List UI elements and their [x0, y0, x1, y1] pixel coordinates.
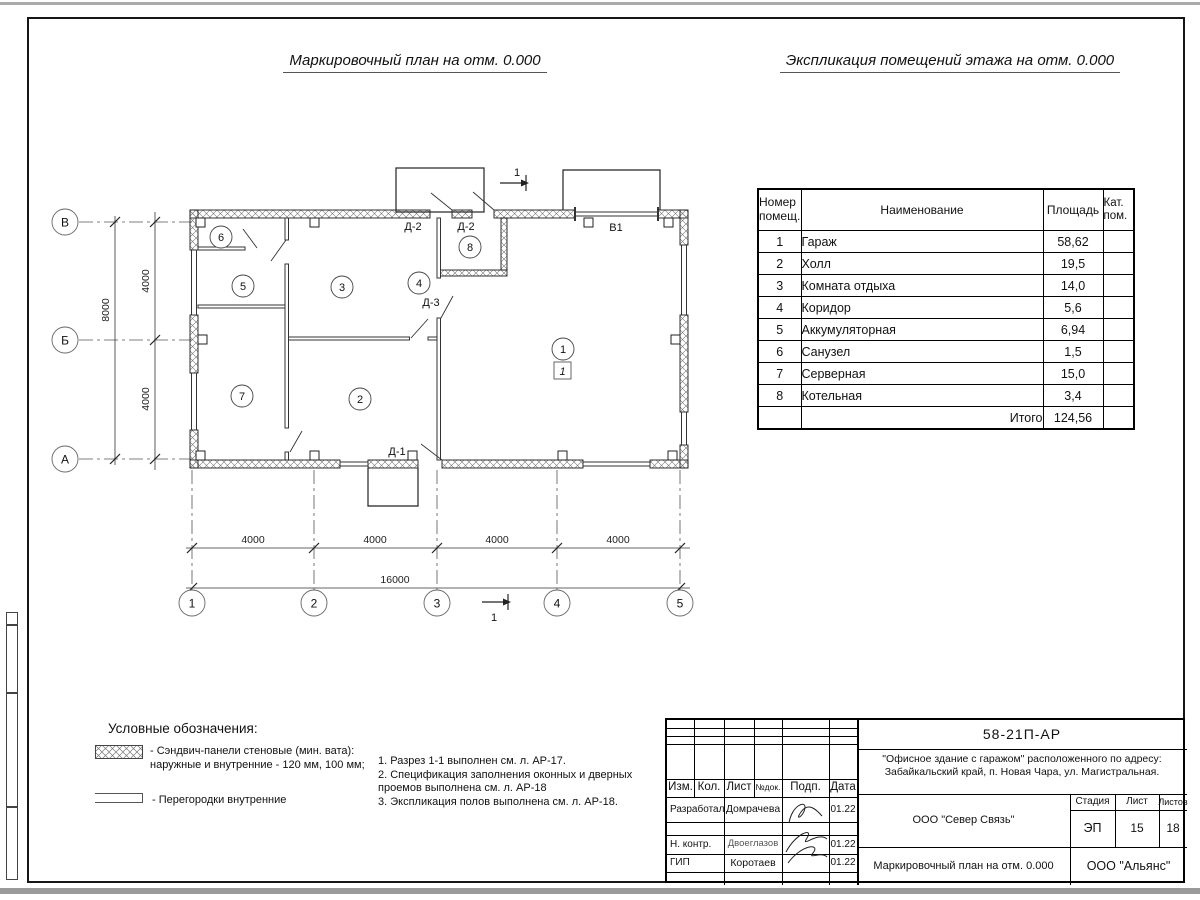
room-cat — [1103, 319, 1134, 341]
svg-text:Д-3: Д-3 — [422, 297, 439, 309]
legend-partition-swatch — [95, 793, 143, 803]
room-cat — [1103, 275, 1134, 297]
table-row: 2Холл19,5 — [758, 253, 1134, 275]
svg-text:5: 5 — [677, 597, 684, 611]
room-area: 58,62 — [1043, 231, 1103, 253]
col-header-num: Номер помещ. — [758, 189, 801, 231]
room-marks: 1 2 3 4 5 6 7 8 — [210, 226, 574, 410]
stamp-line — [857, 749, 1187, 750]
table-header-row: Номер помещ. Наименование Площадь Кат. п… — [758, 189, 1134, 231]
note-1: 1. Разрез 1-1 выполнен см. л. АР-17. — [378, 755, 663, 769]
margin-box-3 — [6, 693, 18, 807]
room-num: 4 — [758, 297, 801, 319]
svg-text:4: 4 — [554, 597, 561, 611]
stamp-line — [667, 736, 857, 737]
note-2-cont: проемов выполнена см. л. АР-18 — [378, 782, 663, 796]
room-name: Санузел — [801, 341, 1043, 363]
room-num: 7 — [758, 363, 801, 385]
room-cat — [1103, 297, 1134, 319]
signatures — [782, 797, 829, 872]
stamp-gip-name: Коротаев — [724, 854, 782, 872]
svg-text:3: 3 — [434, 597, 441, 611]
stamp-object: "Офисное здание с гаражом" расположенног… — [862, 753, 1182, 779]
stamp-col-list: Лист — [724, 779, 754, 797]
explication-table: Номер помещ. Наименование Площадь Кат. п… — [757, 188, 1135, 430]
table-row: 8Котельная3,4 — [758, 385, 1134, 407]
svg-text:2: 2 — [311, 597, 318, 611]
table-row: 1Гараж58,62 — [758, 231, 1134, 253]
room-area: 14,0 — [1043, 275, 1103, 297]
stamp-developed-date: 01.22 — [829, 797, 857, 822]
stamp-sheets-value: 18 — [1159, 810, 1187, 847]
col-header-area: Площадь — [1043, 189, 1103, 231]
room-num: 5 — [758, 319, 801, 341]
svg-text:7: 7 — [239, 391, 245, 403]
svg-text:4000: 4000 — [363, 534, 387, 546]
drawing-sheet: Маркировочный план на отм. 0.000 Эксплик… — [0, 0, 1200, 900]
table-row: 6Санузел1,5 — [758, 341, 1134, 363]
svg-text:Д-2: Д-2 — [404, 221, 421, 233]
empty-cell — [1103, 407, 1134, 430]
stamp-org2: ООО "Альянс" — [1070, 847, 1187, 885]
svg-text:1: 1 — [189, 597, 196, 611]
table-row: 5Аккумуляторная6,94 — [758, 319, 1134, 341]
stamp-org: ООО "Север Связь" — [857, 794, 1070, 847]
section-mark-bottom: 1 — [482, 594, 511, 624]
stamp-object-line1: "Офисное здание с гаражом" расположенног… — [862, 753, 1182, 766]
stamp-ncontr-label: Н. контр. — [667, 835, 724, 854]
room-num: 6 — [758, 341, 801, 363]
sheet-top-edge — [0, 2, 1200, 5]
floor-plan: 4000 4000 8000 4000 4000 4000 4000 16000… — [40, 145, 700, 630]
stamp-developed-label: Разработал — [667, 797, 724, 822]
legend-item-partition: - Перегородки внутренние — [152, 793, 286, 807]
svg-text:8000: 8000 — [100, 298, 112, 322]
svg-text:8: 8 — [467, 242, 473, 254]
svg-text:1: 1 — [559, 366, 565, 378]
note-3: 3. Экспликация полов выполнена см. л. АР… — [378, 796, 663, 810]
room-cat — [1103, 385, 1134, 407]
stamp-line — [667, 872, 857, 873]
notes: 1. Разрез 1-1 выполнен см. л. АР-17. 2. … — [378, 755, 663, 809]
door-swings — [243, 192, 494, 460]
room-cat — [1103, 363, 1134, 385]
plan-title: Маркировочный план на отм. 0.000 — [180, 52, 650, 73]
svg-text:А: А — [61, 453, 69, 467]
margin-box-2 — [6, 625, 18, 693]
svg-text:4: 4 — [416, 278, 422, 290]
room-cat — [1103, 231, 1134, 253]
svg-text:4000: 4000 — [140, 269, 152, 293]
sheet-bottom-edge — [0, 888, 1200, 894]
room-name: Комната отдыха — [801, 275, 1043, 297]
room-cat — [1103, 253, 1134, 275]
stamp-developed-name: Домрачева — [724, 797, 782, 822]
stamp-sheet-title: Маркировочный план на отм. 0.000 — [857, 847, 1070, 885]
svg-text:4000: 4000 — [241, 534, 265, 546]
margin-box-4 — [6, 807, 18, 880]
svg-text:1: 1 — [560, 344, 566, 356]
signature-developed — [789, 804, 822, 823]
room-num: 1 — [758, 231, 801, 253]
room-area: 19,5 — [1043, 253, 1103, 275]
svg-text:4000: 4000 — [485, 534, 509, 546]
room-num: 3 — [758, 275, 801, 297]
svg-text:4000: 4000 — [606, 534, 630, 546]
svg-text:3: 3 — [339, 282, 345, 294]
col-header-name: Наименование — [801, 189, 1043, 231]
svg-text:В1: В1 — [609, 222, 622, 234]
room-name: Холл — [801, 253, 1043, 275]
stamp-col-ndok: №док. — [754, 779, 782, 797]
table-row: 4Коридор5,6 — [758, 297, 1134, 319]
signature-gip — [786, 833, 827, 863]
stamp-col-podp: Подп. — [782, 779, 829, 797]
svg-text:Д-1: Д-1 — [388, 446, 405, 458]
dimension-lines — [115, 212, 690, 588]
room-area: 6,94 — [1043, 319, 1103, 341]
svg-text:1: 1 — [491, 612, 497, 624]
total-label: Итого — [801, 407, 1043, 430]
legend-sandwich-swatch — [95, 745, 143, 759]
room-area: 5,6 — [1043, 297, 1103, 319]
title-block: Изм. Кол. Лист №док. Подп. Дата Разработ… — [665, 718, 1185, 883]
total-value: 124,56 — [1043, 407, 1103, 430]
stamp-line — [667, 728, 857, 729]
stamp-col-data: Дата — [829, 779, 857, 797]
room-num: 8 — [758, 385, 801, 407]
svg-text:1: 1 — [514, 167, 520, 179]
stamp-sheet-label: Лист — [1115, 794, 1159, 810]
table-row: 3Комната отдыха14,0 — [758, 275, 1134, 297]
explication-title: Экспликация помещений этажа на отм. 0.00… — [735, 52, 1165, 73]
margin-box-1 — [6, 612, 18, 625]
room-name: Аккумуляторная — [801, 319, 1043, 341]
room-name: Котельная — [801, 385, 1043, 407]
room-num: 2 — [758, 253, 801, 275]
svg-text:Б: Б — [61, 334, 69, 348]
legend-heading: Условные обозначения: — [108, 721, 258, 736]
stamp-sheets-label: Листов — [1159, 794, 1187, 810]
table-row: 7Серверная15,0 — [758, 363, 1134, 385]
stamp-sheet-value: 15 — [1115, 810, 1159, 847]
stamp-ncontr-name: Двоеглазов — [724, 835, 782, 854]
stamp-stage-label: Стадия — [1070, 794, 1115, 810]
svg-text:Д-2: Д-2 — [457, 221, 474, 233]
col-header-cat: Кат. пом. — [1103, 189, 1134, 231]
stamp-gip-label: ГИП — [667, 854, 724, 872]
svg-text:5: 5 — [240, 281, 246, 293]
room-cat — [1103, 341, 1134, 363]
floor-type-mark: 1 — [554, 362, 571, 379]
partitions — [198, 218, 441, 460]
section-mark-top: 1 — [500, 167, 529, 191]
legend-item-sandwich-line1: - Сэндвич-панели стеновые (мин. вата): — [150, 744, 410, 758]
table-total-row: Итого 124,56 — [758, 407, 1134, 430]
stamp-line — [667, 744, 857, 745]
room-area: 1,5 — [1043, 341, 1103, 363]
stamp-col-izm: Изм. — [667, 779, 694, 797]
svg-text:16000: 16000 — [380, 574, 409, 586]
stamp-col-kol: Кол. — [694, 779, 724, 797]
stamp-gip-date: 01.22 — [829, 854, 857, 872]
note-2: 2. Спецификация заполнения оконных и две… — [378, 769, 663, 783]
room-name: Коридор — [801, 297, 1043, 319]
stamp-ncontr-date: 01.22 — [829, 835, 857, 854]
svg-text:В: В — [61, 216, 69, 230]
legend-item-sandwich: - Сэндвич-панели стеновые (мин. вата): н… — [150, 744, 410, 772]
room-name: Гараж — [801, 231, 1043, 253]
stamp-doc-number: 58-21П-АР — [857, 720, 1187, 749]
svg-text:6: 6 — [218, 232, 224, 244]
dimension-labels: 4000 4000 8000 4000 4000 4000 4000 16000 — [100, 269, 630, 586]
svg-text:2: 2 — [357, 394, 363, 406]
room-area: 3,4 — [1043, 385, 1103, 407]
room-name: Серверная — [801, 363, 1043, 385]
svg-text:4000: 4000 — [140, 387, 152, 411]
room-area: 15,0 — [1043, 363, 1103, 385]
stamp-stage-value: ЭП — [1070, 810, 1115, 847]
empty-cell — [758, 407, 801, 430]
legend-item-sandwich-line2: наружные и внутренние - 120 мм, 100 мм; — [150, 758, 410, 772]
stamp-object-line2: Забайкальский край, п. Новая Чара, ул. М… — [862, 766, 1182, 779]
